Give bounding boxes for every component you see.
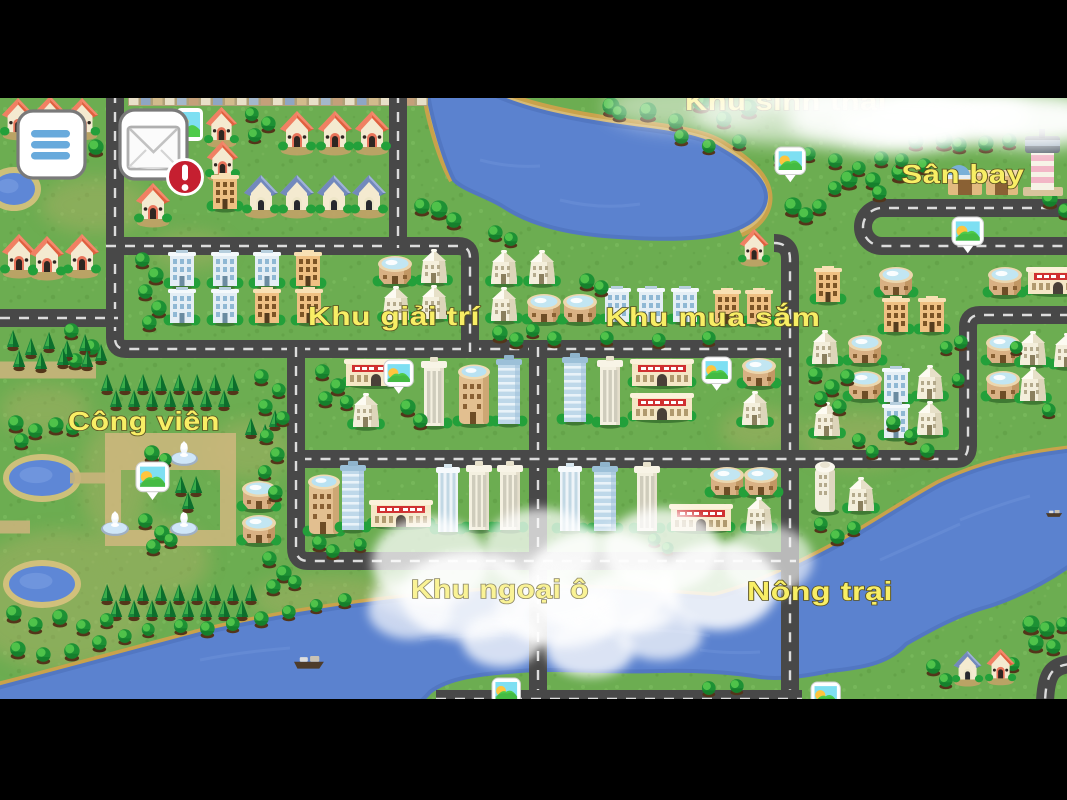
svg-text:Công viên: Công viên	[68, 406, 220, 436]
svg-text:Sân bay: Sân bay	[902, 159, 1025, 189]
svg-text:Khu mua sắm: Khu mua sắm	[606, 302, 821, 332]
svg-text:Khu giải trí: Khu giải trí	[308, 301, 480, 331]
svg-text:Nông trại: Nông trại	[747, 576, 893, 606]
